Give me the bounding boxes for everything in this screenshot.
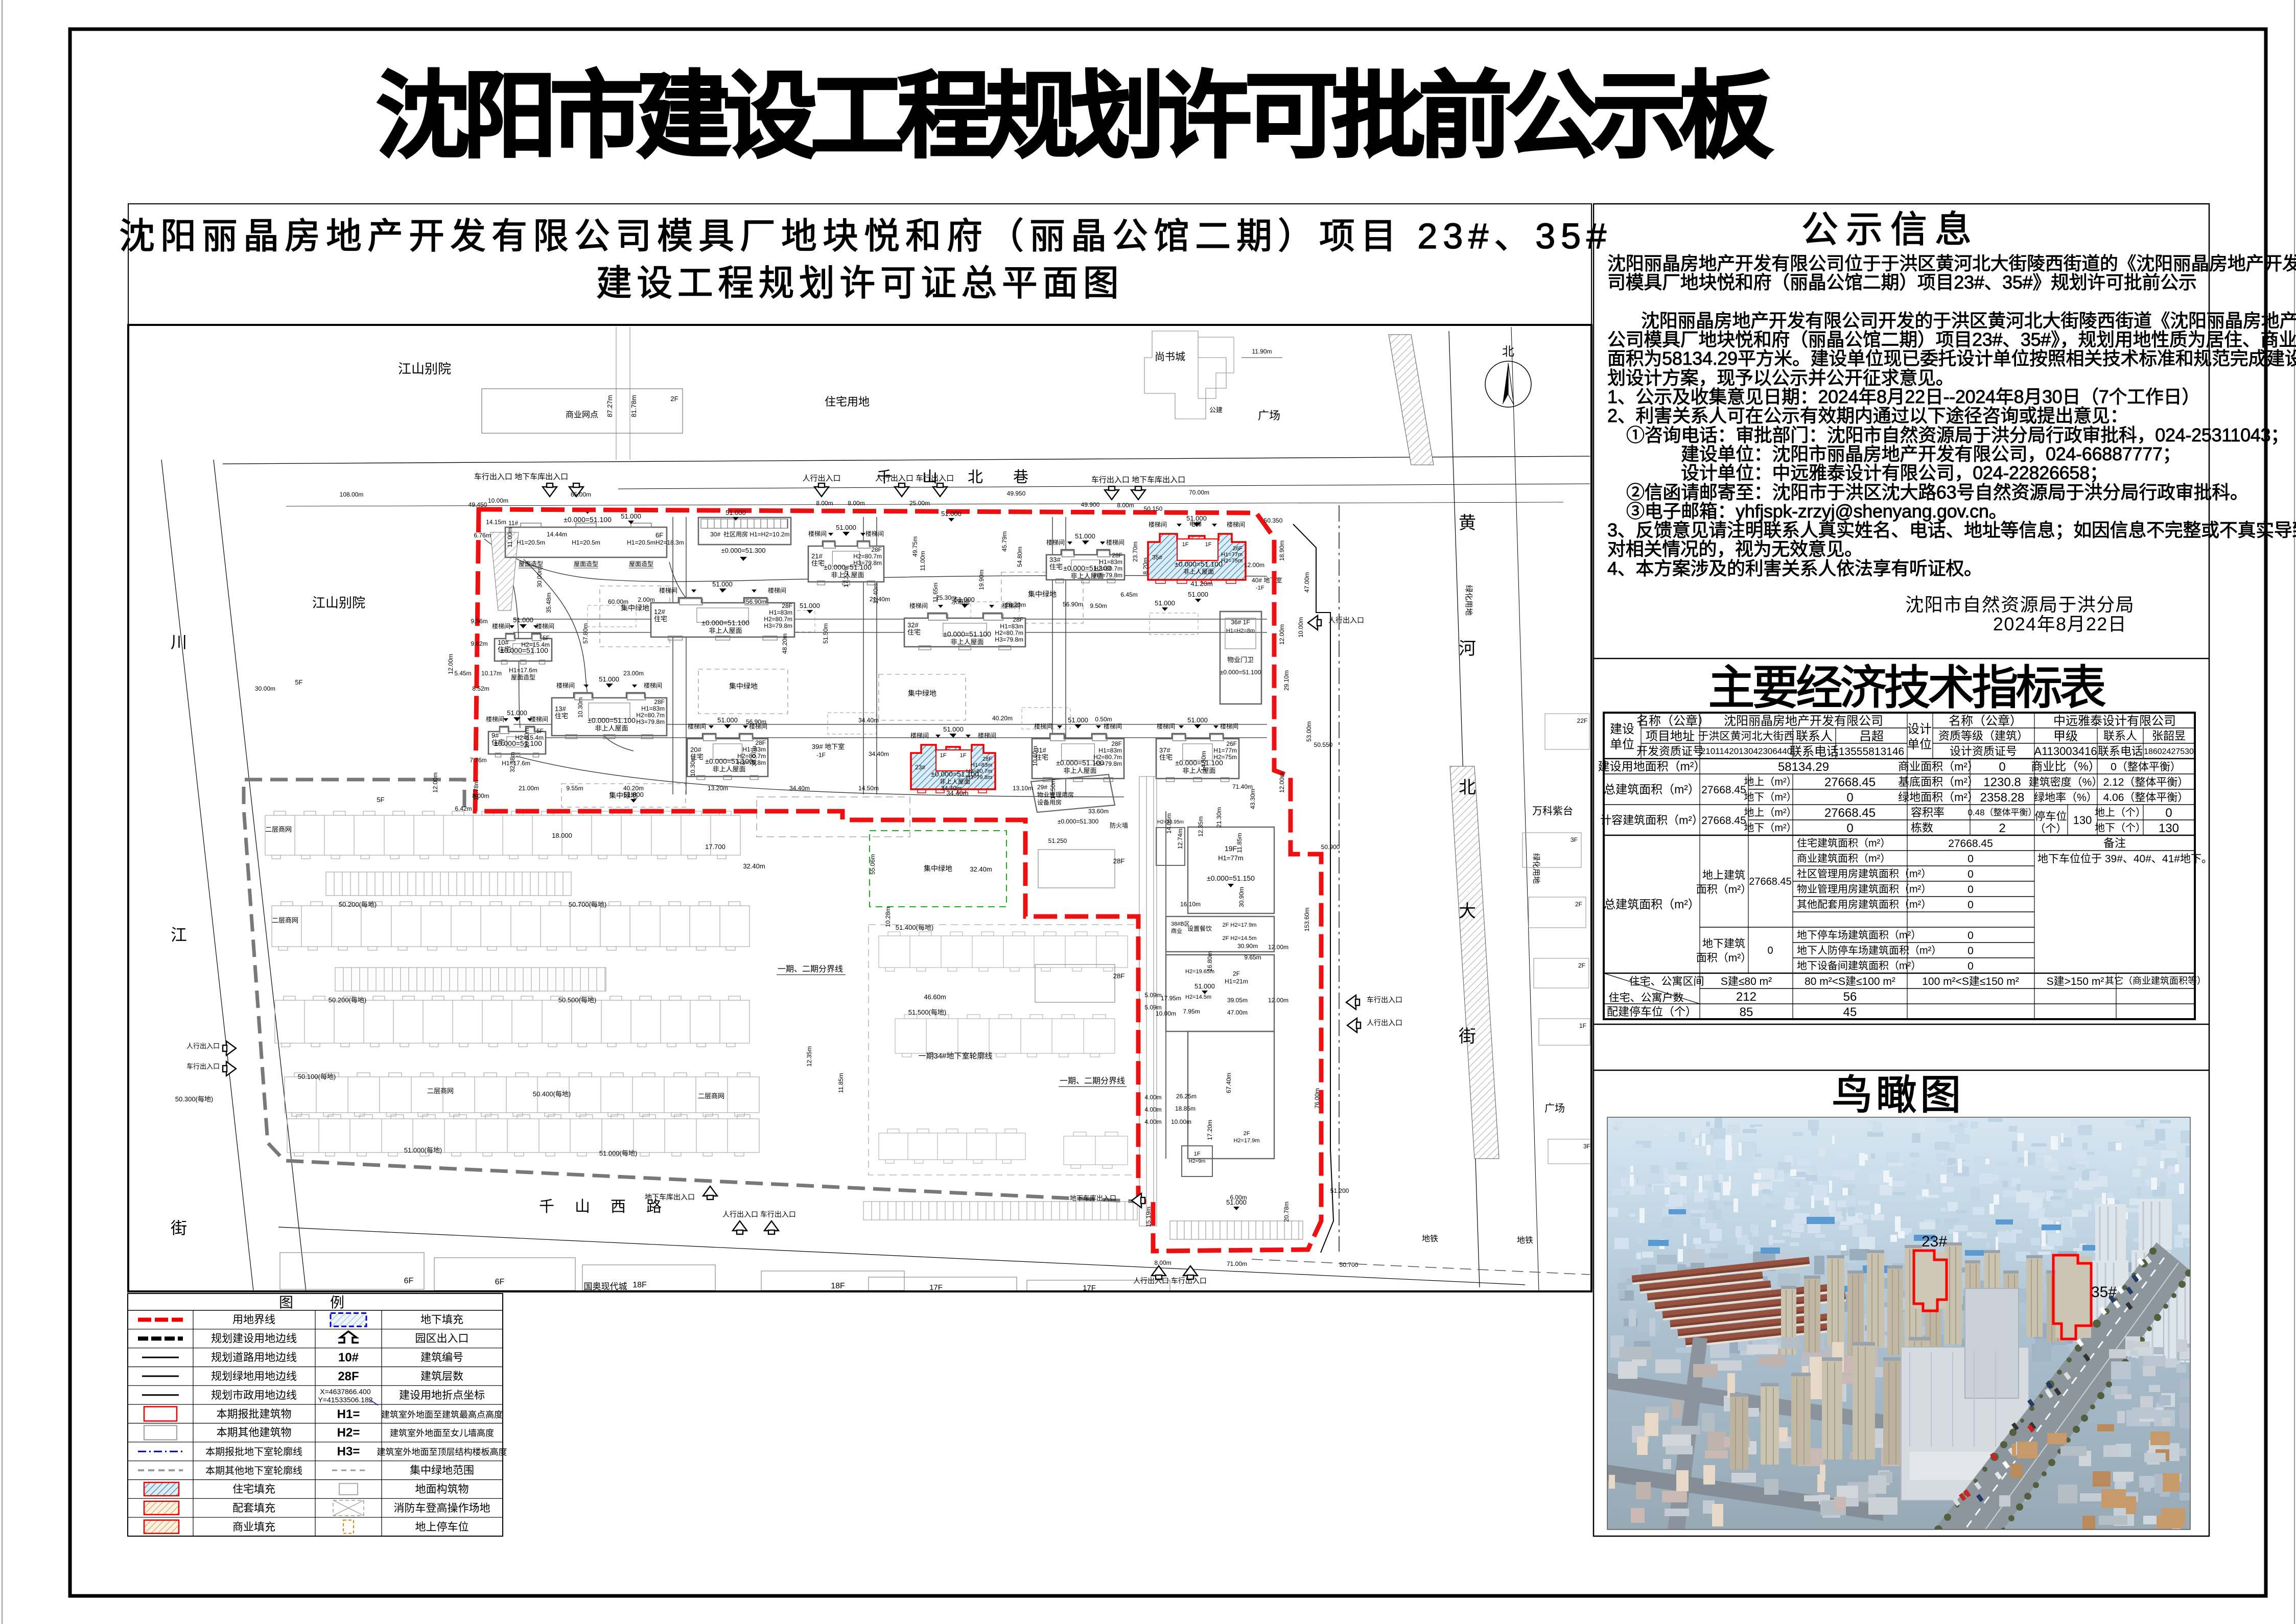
svg-text:32.40m: 32.40m xyxy=(970,865,992,873)
svg-text:一期、二期分界线: 一期、二期分界线 xyxy=(778,964,843,974)
svg-text:本期其他建筑物: 本期其他建筑物 xyxy=(217,1427,292,1439)
svg-text:6.76m: 6.76m xyxy=(474,532,490,539)
svg-text:22F: 22F xyxy=(1577,717,1588,724)
svg-text:30.90m: 30.90m xyxy=(1238,887,1245,907)
svg-text:34.40m: 34.40m xyxy=(941,785,962,792)
svg-text:2: 2 xyxy=(1999,821,2005,835)
svg-text:51.000: 51.000 xyxy=(943,725,964,733)
svg-text:楼梯间: 楼梯间 xyxy=(1220,722,1238,730)
svg-text:45: 45 xyxy=(1843,1005,1857,1019)
svg-text:社区用房 H1=H2=10.2m: 社区用房 H1=H2=10.2m xyxy=(723,530,789,538)
svg-text:1230.8: 1230.8 xyxy=(1983,775,2021,789)
svg-text:11.00m: 11.00m xyxy=(506,527,513,547)
svg-text:2.12（整体平衡）: 2.12（整体平衡） xyxy=(2103,776,2189,788)
svg-text:19.90m: 19.90m xyxy=(978,570,985,590)
svg-text:张韶昱: 张韶昱 xyxy=(2152,729,2186,742)
svg-text:51.000: 51.000 xyxy=(1187,716,1208,724)
svg-text:6.42m: 6.42m xyxy=(455,805,472,812)
svg-text:11.85m: 11.85m xyxy=(837,1073,845,1093)
svg-text:H1=83m: H1=83m xyxy=(971,762,992,768)
svg-text:地下车位位于 39#、40#、41#地下。: 地下车位位于 39#、40#、41#地下。 xyxy=(2037,853,2212,865)
svg-text:56.90m: 56.90m xyxy=(1063,601,1083,608)
svg-text:建筑室外地面至建筑最高点高度: 建筑室外地面至建筑最高点高度 xyxy=(381,1410,503,1420)
svg-text:联系人: 联系人 xyxy=(1796,729,1833,743)
svg-text:49.450: 49.450 xyxy=(468,501,487,508)
svg-text:130: 130 xyxy=(2073,814,2092,827)
svg-text:S建≤80 m²: S建≤80 m² xyxy=(1721,976,1772,987)
svg-text:9.50m: 9.50m xyxy=(1090,602,1107,609)
svg-text:34.40m: 34.40m xyxy=(789,785,810,792)
svg-text:10.60m: 10.60m xyxy=(1032,746,1039,766)
svg-text:16.80m: 16.80m xyxy=(1206,951,1213,972)
svg-text:9.55m: 9.55m xyxy=(566,785,583,792)
svg-text:1F: 1F xyxy=(1182,542,1189,548)
svg-text:车行出入口 地下车库出入口: 车行出入口 地下车库出入口 xyxy=(1091,476,1185,484)
svg-text:设置餐饮: 设置餐饮 xyxy=(1187,925,1212,932)
svg-text:40# 地下室: 40# 地下室 xyxy=(1252,576,1282,584)
svg-text:大: 大 xyxy=(1459,902,1476,921)
svg-text:50.150: 50.150 xyxy=(1144,505,1163,512)
svg-text:建筑层数: 建筑层数 xyxy=(420,1371,463,1382)
svg-text:14.15m: 14.15m xyxy=(486,519,506,526)
svg-text:±0.000=51.300: ±0.000=51.300 xyxy=(721,547,765,554)
svg-text:18.000: 18.000 xyxy=(552,832,572,839)
svg-text:江山别院: 江山别院 xyxy=(398,361,451,376)
svg-text:H3=: H3= xyxy=(337,1445,360,1458)
svg-text:2.00m: 2.00m xyxy=(638,596,654,603)
svg-text:建筑密度（%）: 建筑密度（%） xyxy=(2029,776,2103,788)
svg-text:49.900: 49.900 xyxy=(1081,501,1100,508)
svg-text:7.95m: 7.95m xyxy=(1183,1008,1200,1015)
svg-text:（公章）: （公章） xyxy=(1973,714,2022,728)
svg-text:20.78m: 20.78m xyxy=(1283,1202,1290,1222)
svg-text:26F: 26F xyxy=(1226,740,1237,747)
svg-text:50.300(每地): 50.300(每地) xyxy=(175,1095,213,1103)
svg-text:51.200: 51.200 xyxy=(1330,1187,1349,1194)
svg-text:地下人防停车场建筑面积（m²）: 地下人防停车场建筑面积（m²） xyxy=(1797,945,1941,956)
svg-text:H1=: H1= xyxy=(337,1407,360,1421)
svg-text:H3=79.8m: H3=79.8m xyxy=(966,774,992,781)
svg-text:35.48m: 35.48m xyxy=(545,593,552,613)
svg-text:14.50m: 14.50m xyxy=(1049,779,1057,799)
svg-text:212: 212 xyxy=(1736,990,1756,1004)
svg-text:广场: 广场 xyxy=(1258,409,1280,422)
svg-text:绿化用地: 绿化用地 xyxy=(1464,585,1473,616)
svg-text:地下（个）: 地下（个） xyxy=(2095,822,2146,834)
svg-text:二层商网: 二层商网 xyxy=(265,826,292,833)
svg-text:2F: 2F xyxy=(1244,1131,1250,1137)
svg-text:5F: 5F xyxy=(295,678,302,686)
svg-text:51.000: 51.000 xyxy=(712,580,733,588)
svg-text:0.50m: 0.50m xyxy=(1095,716,1112,723)
svg-text:楼梯间: 楼梯间 xyxy=(1227,521,1245,528)
svg-text:37#: 37# xyxy=(1159,746,1170,754)
svg-text:划设计方案，现予以公示并公开征求意见。: 划设计方案，现予以公示并公开征求意见。 xyxy=(1607,367,1954,388)
svg-text:楼梯间: 楼梯间 xyxy=(659,586,677,594)
svg-text:56.90m: 56.90m xyxy=(746,598,766,605)
svg-text:14.06m: 14.06m xyxy=(1165,813,1173,834)
svg-text:23.70m: 23.70m xyxy=(1132,542,1139,562)
svg-text:23#: 23# xyxy=(915,764,925,771)
svg-text:非上人屋面: 非上人屋面 xyxy=(1183,568,1214,575)
svg-text:栋数: 栋数 xyxy=(1911,821,1933,834)
svg-text:1F: 1F xyxy=(960,752,967,759)
svg-text:非上人屋面: 非上人屋面 xyxy=(595,724,628,732)
svg-text:地铁: 地铁 xyxy=(1422,1234,1438,1243)
svg-text:27668.45: 27668.45 xyxy=(1701,784,1746,796)
svg-text:50.550: 50.550 xyxy=(1314,741,1333,748)
svg-text:北: 北 xyxy=(1502,345,1514,359)
svg-text:33.60m: 33.60m xyxy=(1088,808,1109,815)
svg-text:5.45m: 5.45m xyxy=(454,670,471,677)
svg-text:建筑室外地面至顶层结构楼板高度: 建筑室外地面至顶层结构楼板高度 xyxy=(377,1447,507,1457)
svg-text:28F: 28F xyxy=(654,698,665,705)
svg-text:地下设备间建筑面积（m²）: 地下设备间建筑面积（m²） xyxy=(1797,960,1921,972)
svg-text:H1=83m: H1=83m xyxy=(1098,747,1122,754)
svg-text:集中绿地: 集中绿地 xyxy=(924,864,952,873)
svg-text:1F: 1F xyxy=(940,752,947,759)
svg-text:集中绿地: 集中绿地 xyxy=(729,682,758,690)
svg-text:48.20m: 48.20m xyxy=(781,633,788,654)
svg-text:H2=17.9m: H2=17.9m xyxy=(1233,1138,1259,1144)
svg-text:1F: 1F xyxy=(1579,1022,1586,1029)
svg-text:11#: 11# xyxy=(508,520,518,527)
svg-text:屋面造型: 屋面造型 xyxy=(519,560,543,568)
svg-text:江山别院: 江山别院 xyxy=(312,595,365,610)
svg-text:（个）: （个） xyxy=(2035,823,2067,835)
svg-text:楼梯间: 楼梯间 xyxy=(768,586,786,594)
svg-text:面积为58134.29平方米。建设单位现已委托设计单位按照相: 面积为58134.29平方米。建设单位现已委托设计单位按照相关技术标准和规范完成… xyxy=(1607,348,2296,369)
svg-text:屋面造型: 屋面造型 xyxy=(511,674,535,681)
svg-text:10.60m: 10.60m xyxy=(523,728,530,748)
svg-text:非上人屋面: 非上人屋面 xyxy=(712,765,745,773)
svg-text:16.10m: 16.10m xyxy=(1180,901,1201,908)
svg-text:建设用地面积（m²）: 建设用地面积（m²） xyxy=(1598,760,1706,773)
svg-text:2F: 2F xyxy=(670,395,678,403)
svg-text:6F: 6F xyxy=(495,1278,505,1286)
svg-text:21.00m: 21.00m xyxy=(519,785,539,792)
svg-text:81.78m: 81.78m xyxy=(630,395,638,417)
svg-text:12.00m: 12.00m xyxy=(432,772,439,793)
svg-text:物业管理用房建筑面积（m²）: 物业管理用房建筑面积（m²） xyxy=(1797,883,1931,895)
svg-text:H2=80.7m: H2=80.7m xyxy=(995,629,1023,637)
svg-text:地上（m²）: 地上（m²） xyxy=(1744,776,1796,788)
svg-text:2101142013042306440: 2101142013042306440 xyxy=(1701,746,1792,756)
svg-text:12.00m: 12.00m xyxy=(1278,772,1285,793)
svg-text:住宅填充: 住宅填充 xyxy=(232,1484,275,1495)
svg-text:28F: 28F xyxy=(755,739,766,746)
svg-text:0: 0 xyxy=(1967,884,1974,896)
svg-text:开发资质证号: 开发资质证号 xyxy=(1636,745,1704,758)
svg-text:17.700: 17.700 xyxy=(705,843,725,851)
svg-text:物业门卫: 物业门卫 xyxy=(1227,656,1254,664)
svg-text:集中绿地范围: 集中绿地范围 xyxy=(410,1465,474,1476)
svg-text:2、利害关系人可在公示有效期内通过以下途径咨询或提出意见：: 2、利害关系人可在公示有效期内通过以下途径咨询或提出意见： xyxy=(1607,405,2128,426)
svg-text:面积（m²）: 面积（m²） xyxy=(1696,884,1752,896)
svg-text:H2=18.3m: H2=18.3m xyxy=(655,539,684,546)
svg-text:地下填充: 地下填充 xyxy=(420,1314,463,1326)
svg-text:26.25m: 26.25m xyxy=(1176,1093,1197,1100)
svg-text:51.000: 51.000 xyxy=(800,602,820,609)
svg-text:H2=75m: H2=75m xyxy=(1221,558,1243,564)
svg-text:规划道路用地边线: 规划道路用地边线 xyxy=(211,1352,297,1363)
svg-text:楼梯间: 楼梯间 xyxy=(978,732,996,739)
svg-text:±0.000=51.100: ±0.000=51.100 xyxy=(564,515,612,524)
svg-text:尚书城: 尚书城 xyxy=(1155,351,1185,363)
svg-text:2F: 2F xyxy=(1578,962,1585,969)
svg-text:28F: 28F xyxy=(871,546,882,553)
svg-text:70.00m: 70.00m xyxy=(1189,489,1209,496)
svg-text:51.000: 51.000 xyxy=(599,675,619,683)
svg-text:地铁: 地铁 xyxy=(1517,1236,1533,1245)
svg-text:±0.000=51.100: ±0.000=51.100 xyxy=(1175,560,1223,568)
svg-text:楼梯间: 楼梯间 xyxy=(530,715,548,723)
svg-text:楼梯间: 楼梯间 xyxy=(486,715,504,723)
svg-text:28F: 28F xyxy=(1111,740,1122,747)
svg-text:总建筑面积（m²）: 总建筑面积（m²） xyxy=(1604,783,1700,796)
svg-text:地下建筑: 地下建筑 xyxy=(1702,938,1745,950)
svg-text:住宅、公寓区间: 住宅、公寓区间 xyxy=(1629,976,1704,987)
svg-text:住宅: 住宅 xyxy=(555,712,568,720)
svg-text:51.000: 51.000 xyxy=(1194,982,1215,990)
svg-text:项目地址: 项目地址 xyxy=(1646,729,1695,743)
svg-text:51.000: 51.000 xyxy=(513,616,533,624)
svg-text:建设: 建设 xyxy=(1610,722,1634,736)
svg-text:53.00m: 53.00m xyxy=(1305,721,1313,742)
svg-text:34.40m: 34.40m xyxy=(858,717,879,724)
svg-text:①咨询电话：审批部门：沈阳市自然资源局于洪分局行政审批科，0: ①咨询电话：审批部门：沈阳市自然资源局于洪分局行政审批科，024-2531104… xyxy=(1626,425,2289,445)
svg-text:51.000(每地): 51.000(每地) xyxy=(599,1149,637,1157)
svg-text:楼梯间: 楼梯间 xyxy=(808,530,827,537)
svg-text:北: 北 xyxy=(1459,778,1476,797)
svg-text:其它（商业建筑面积等）: 其它（商业建筑面积等） xyxy=(2105,976,2206,986)
svg-text:2F H2=14.5m: 2F H2=14.5m xyxy=(1223,935,1257,942)
svg-text:29#: 29# xyxy=(1037,784,1047,791)
svg-text:14.44m: 14.44m xyxy=(547,531,567,538)
svg-text:±0.000=51.100: ±0.000=51.100 xyxy=(943,630,991,638)
svg-text:±0.000=51.100: ±0.000=51.100 xyxy=(701,619,749,627)
svg-text:H1=H2=8m: H1=H2=8m xyxy=(1226,628,1255,634)
svg-text:住宅: 住宅 xyxy=(654,615,667,623)
svg-text:3、反馈意见请注明联系人真实姓名、电话、地址等信息；如因信息: 3、反馈意见请注明联系人真实姓名、电话、地址等信息；如因信息不完整或不真实导致无… xyxy=(1607,520,2296,540)
svg-text:10.00m: 10.00m xyxy=(1171,1118,1191,1125)
svg-text:51.50m: 51.50m xyxy=(822,623,829,644)
svg-text:130: 130 xyxy=(2159,821,2179,835)
svg-text:27668.45: 27668.45 xyxy=(1701,815,1746,827)
svg-text:H1=20.5m: H1=20.5m xyxy=(517,539,545,546)
svg-text:绿化用地: 绿化用地 xyxy=(1532,853,1540,884)
svg-text:10.30m: 10.30m xyxy=(577,697,584,718)
svg-text:0: 0 xyxy=(1967,853,1974,865)
svg-text:1F: 1F xyxy=(1194,1151,1201,1157)
svg-text:楼梯间: 楼梯间 xyxy=(644,681,662,689)
svg-text:23.00m: 23.00m xyxy=(623,670,644,677)
svg-text:50.200(每地): 50.200(每地) xyxy=(339,901,377,908)
svg-text:18.90m: 18.90m xyxy=(1278,540,1285,561)
svg-text:46.60m: 46.60m xyxy=(924,993,946,1001)
svg-text:非上人屋面: 非上人屋面 xyxy=(1182,767,1215,774)
svg-text:住宅、公寓户数: 住宅、公寓户数 xyxy=(1609,992,1684,1004)
svg-text:公建: 公建 xyxy=(1209,406,1223,414)
svg-text:12.00m: 12.00m xyxy=(1268,944,1288,951)
svg-text:7.76m: 7.76m xyxy=(470,757,486,764)
svg-text:50.700: 50.700 xyxy=(1340,1261,1358,1268)
svg-text:H1=17.6m: H1=17.6m xyxy=(509,667,537,674)
svg-text:甲级: 甲级 xyxy=(2053,729,2078,743)
svg-text:58134.29: 58134.29 xyxy=(1778,760,1829,774)
svg-text:8.00m: 8.00m xyxy=(1154,1259,1171,1266)
svg-text:65.00m: 65.00m xyxy=(571,491,591,498)
svg-text:地下车库出入口: 地下车库出入口 xyxy=(645,1193,695,1201)
svg-text:51.000: 51.000 xyxy=(623,791,644,798)
svg-text:（公章）: （公章） xyxy=(1661,714,1710,728)
svg-text:14.50m: 14.50m xyxy=(1200,751,1207,771)
svg-text:12#: 12# xyxy=(654,608,665,616)
svg-text:32.38m: 32.38m xyxy=(509,752,516,772)
svg-text:±0.000=51.100: ±0.000=51.100 xyxy=(1220,669,1261,676)
svg-text:18.78m: 18.78m xyxy=(473,780,480,801)
svg-text:资质等级（建筑）: 资质等级（建筑） xyxy=(1938,729,2028,742)
svg-text:27668.45: 27668.45 xyxy=(1824,775,1876,789)
svg-text:5.09m: 5.09m xyxy=(1144,992,1161,999)
svg-text:87.27m: 87.27m xyxy=(606,395,614,417)
svg-text:14.50m: 14.50m xyxy=(858,785,879,792)
svg-text:3F: 3F xyxy=(1571,836,1578,843)
svg-text:沈阳丽晶房地产开发有限公司位于于洪区黄河北大街陵西街道的《沈: 沈阳丽晶房地产开发有限公司位于于洪区黄河北大街陵西街道的《沈阳丽晶房地产开发有限… xyxy=(1607,253,2296,274)
svg-text:规划建设用地边线: 规划建设用地边线 xyxy=(211,1333,297,1345)
svg-text:10#: 10# xyxy=(498,639,509,646)
svg-text:13.10m: 13.10m xyxy=(1013,785,1033,792)
svg-text:设计资质证号: 设计资质证号 xyxy=(1950,745,2017,758)
svg-text:10.17m: 10.17m xyxy=(481,670,502,677)
svg-text:1、公示及收集意见日期：2024年8月22日--2024年8: 1、公示及收集意见日期：2024年8月22日--2024年8月30日（7个工作日… xyxy=(1607,386,2200,407)
svg-text:H1=77m: H1=77m xyxy=(1218,854,1244,862)
svg-text:绿地面积（m²）: 绿地面积（m²） xyxy=(1898,791,1979,804)
svg-text:51.000: 51.000 xyxy=(1075,532,1095,540)
svg-text:51.000: 51.000 xyxy=(1155,599,1175,607)
svg-text:12.35m: 12.35m xyxy=(1197,816,1204,837)
svg-text:4.00m: 4.00m xyxy=(1144,1094,1161,1101)
svg-text:地下（m²）: 地下（m²） xyxy=(1744,822,1796,834)
svg-text:图: 图 xyxy=(279,1295,293,1310)
svg-text:于洪区黄河北大街西: 于洪区黄河北大街西 xyxy=(1698,731,1795,742)
svg-text:沈阳丽晶房地产开发有限公司: 沈阳丽晶房地产开发有限公司 xyxy=(1724,714,1883,728)
svg-text:住宅: 住宅 xyxy=(1159,754,1173,761)
svg-text:H3=79.8m: H3=79.8m xyxy=(995,636,1023,643)
svg-text:13#: 13# xyxy=(555,705,566,713)
svg-text:56.90m: 56.90m xyxy=(746,718,766,725)
svg-text:8.00m: 8.00m xyxy=(1117,502,1134,509)
svg-text:50.350: 50.350 xyxy=(1264,517,1283,524)
svg-text:5F: 5F xyxy=(377,796,384,804)
svg-text:楼梯间: 楼梯间 xyxy=(910,732,929,739)
svg-text:51.000: 51.000 xyxy=(725,509,746,516)
svg-text:13.20m: 13.20m xyxy=(708,785,728,792)
svg-text:二层商网: 二层商网 xyxy=(427,1087,454,1095)
svg-text:45.79m: 45.79m xyxy=(1001,531,1008,552)
svg-text:35#: 35# xyxy=(1152,554,1162,561)
svg-text:人行出入口: 人行出入口 xyxy=(1367,1019,1402,1027)
svg-text:100 m²<S建≤150 m²: 100 m²<S建≤150 m² xyxy=(1922,976,2019,987)
svg-text:H2=75m: H2=75m xyxy=(1213,754,1237,761)
svg-text:51.500(每地): 51.500(每地) xyxy=(908,1008,946,1016)
svg-text:联系人: 联系人 xyxy=(2103,729,2137,742)
svg-text:楼梯间: 楼梯间 xyxy=(1046,538,1065,546)
svg-text:地上（个）: 地上（个） xyxy=(2095,807,2146,818)
svg-text:吕超: 吕超 xyxy=(1859,729,1884,743)
svg-text:一期34#地下室轮廓线: 一期34#地下室轮廓线 xyxy=(918,1052,992,1061)
svg-text:40.20m: 40.20m xyxy=(992,715,1013,722)
svg-text:一期、二期分界线: 一期、二期分界线 xyxy=(1060,1076,1125,1086)
svg-text:30.90m: 30.90m xyxy=(1237,943,1258,950)
svg-text:0: 0 xyxy=(1846,791,1853,805)
svg-text:27668.45: 27668.45 xyxy=(1948,838,1993,850)
svg-text:H1=77m: H1=77m xyxy=(1221,552,1243,558)
svg-text:对相关情况的，视为无效意见。: 对相关情况的，视为无效意见。 xyxy=(1607,538,1863,559)
svg-text:商业建筑面积（m²）: 商业建筑面积（m²） xyxy=(1797,853,1890,864)
svg-text:1F: 1F xyxy=(1205,542,1212,548)
svg-text:18602427530: 18602427530 xyxy=(2144,747,2194,756)
svg-text:H2=80.7m: H2=80.7m xyxy=(966,768,992,774)
svg-text:28F: 28F xyxy=(1013,616,1023,623)
svg-text:5F: 5F xyxy=(536,727,544,735)
svg-text:商业比（%）: 商业比（%） xyxy=(2031,760,2100,773)
svg-text:4.00m: 4.00m xyxy=(1144,1118,1161,1125)
svg-text:商业填充: 商业填充 xyxy=(232,1521,275,1533)
svg-text:51.000: 51.000 xyxy=(836,524,856,531)
svg-text:43.30m: 43.30m xyxy=(1249,789,1256,809)
svg-text:楼梯间: 楼梯间 xyxy=(909,602,928,609)
svg-text:地面构筑物: 地面构筑物 xyxy=(415,1484,469,1495)
svg-text:85: 85 xyxy=(1740,1005,1753,1019)
svg-text:54.80m: 54.80m xyxy=(1016,547,1023,567)
svg-text:49.950: 49.950 xyxy=(1007,490,1026,497)
svg-text:园区出入口: 园区出入口 xyxy=(415,1333,469,1345)
svg-text:车行出入口: 车行出入口 xyxy=(1367,996,1402,1004)
svg-text:国奥现代城: 国奥现代城 xyxy=(584,1282,627,1291)
svg-text:2024年8月22日: 2024年8月22日 xyxy=(1993,614,2127,634)
svg-text:商业网点: 商业网点 xyxy=(566,410,598,419)
svg-text:28F: 28F xyxy=(1113,857,1124,865)
svg-text:建设用地折点坐标: 建设用地折点坐标 xyxy=(399,1390,485,1401)
svg-text:人行出入口: 人行出入口 xyxy=(1328,616,1364,624)
svg-text:36# 1F: 36# 1F xyxy=(1231,619,1250,626)
svg-text:55.06m: 55.06m xyxy=(869,854,876,875)
svg-text:0（整体平衡）: 0（整体平衡） xyxy=(2111,761,2181,773)
svg-text:沈阳丽晶房地产开发有限公司开发的于洪区黄河北大街陵西街道《沈: 沈阳丽晶房地产开发有限公司开发的于洪区黄河北大街陵西街道《沈阳丽晶房地产开发有限 xyxy=(1641,310,2296,331)
svg-text:12.74m: 12.74m xyxy=(1177,829,1184,849)
svg-text:15.19m: 15.19m xyxy=(1145,1207,1152,1227)
svg-text:32.40m: 32.40m xyxy=(743,862,765,870)
svg-text:9.62m: 9.62m xyxy=(471,640,487,647)
svg-text:面积（m²）: 面积（m²） xyxy=(1696,952,1752,964)
svg-text:18F: 18F xyxy=(831,1282,845,1290)
svg-text:6F: 6F xyxy=(404,1277,414,1285)
svg-text:屋面造型: 屋面造型 xyxy=(629,560,653,568)
svg-text:河: 河 xyxy=(1459,639,1476,658)
svg-text:-1F: -1F xyxy=(1256,585,1264,591)
svg-text:28F: 28F xyxy=(982,756,992,762)
svg-text:57.80m: 57.80m xyxy=(582,623,589,644)
svg-text:0: 0 xyxy=(1846,821,1853,835)
svg-text:楼梯间: 楼梯间 xyxy=(1149,521,1167,528)
svg-text:25.00m: 25.00m xyxy=(909,500,930,507)
svg-text:商业面积（m²）: 商业面积（m²） xyxy=(1898,760,1979,773)
svg-text:10.00m: 10.00m xyxy=(1156,1010,1176,1017)
svg-text:楼梯间: 楼梯间 xyxy=(556,681,575,689)
svg-text:11.65m: 11.65m xyxy=(932,582,939,602)
svg-text:沈阳市建设工程规划许可批前公示板: 沈阳市建设工程规划许可批前公示板 xyxy=(376,63,1773,169)
